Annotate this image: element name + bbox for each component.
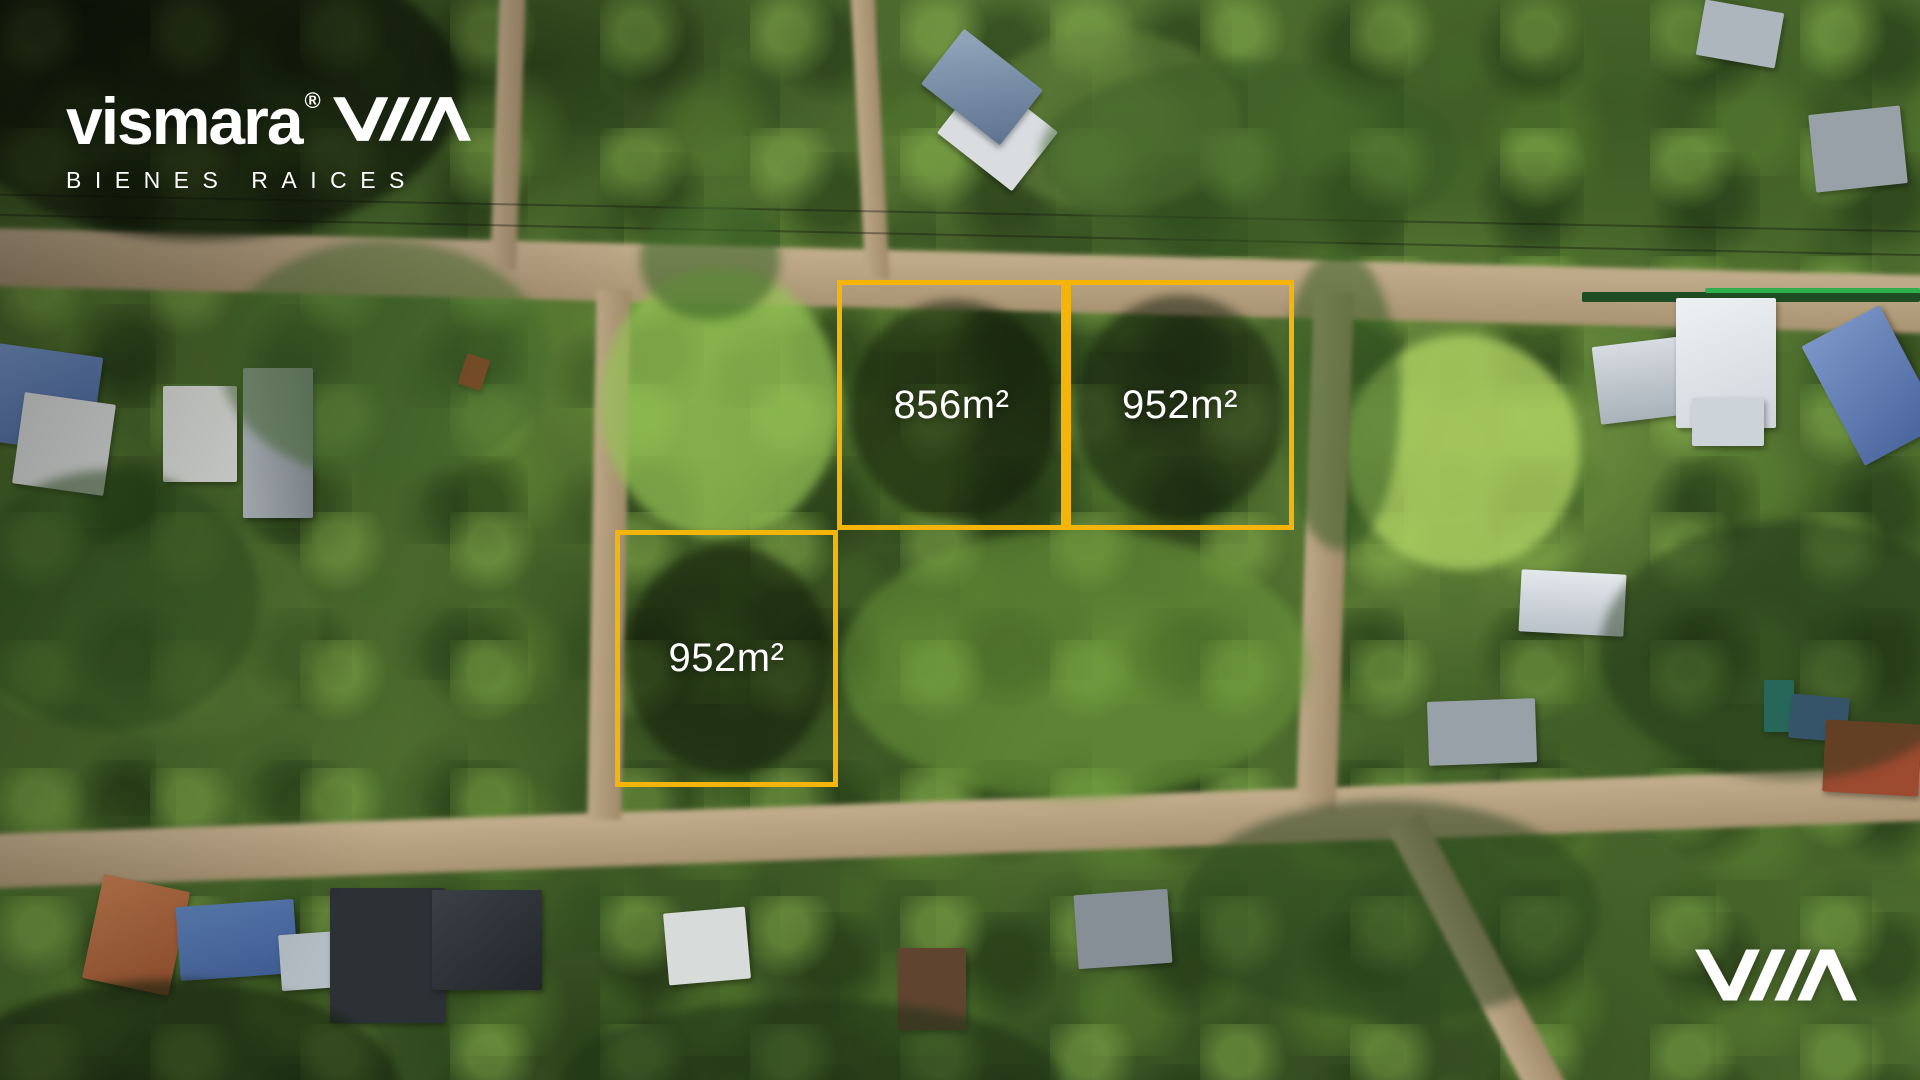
lot-area-label: 952m² xyxy=(1122,383,1238,428)
aerial-photo: 856m² 952m² 952m² vismara ® xyxy=(0,0,1920,1080)
vismara-wordmark: vismara xyxy=(66,88,302,154)
vismara-tagline: BIENES RAICES xyxy=(66,167,471,194)
lot-boundary-952-top: 952m² xyxy=(1066,280,1294,530)
lot-boundary-856: 856m² xyxy=(837,280,1066,530)
via-logo-icon xyxy=(333,96,471,142)
lot-area-label: 952m² xyxy=(669,636,785,681)
registered-trademark-symbol: ® xyxy=(305,90,321,112)
lot-boundary-952-bottom: 952m² xyxy=(615,530,838,787)
via-watermark-icon xyxy=(1695,948,1857,1002)
vismara-logo: vismara ® BIENES RAICES xyxy=(66,88,471,194)
lot-area-label: 856m² xyxy=(894,383,1010,428)
